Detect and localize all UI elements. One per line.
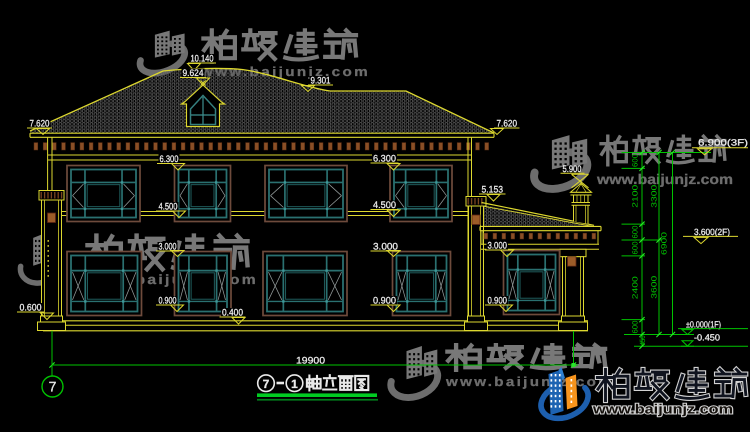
svg-text:-0.450: -0.450 (694, 333, 720, 343)
svg-text:3300: 3300 (650, 185, 659, 208)
svg-text:600: 600 (631, 241, 640, 254)
svg-text:600: 600 (631, 226, 640, 239)
svg-text:6.900(3F): 6.900(3F) (698, 137, 748, 147)
svg-text:1: 1 (291, 377, 298, 391)
svg-text:6900: 6900 (660, 232, 669, 255)
svg-text:±0.000(1F): ±0.000(1F) (686, 319, 721, 329)
svg-text:19900: 19900 (296, 356, 325, 367)
svg-text:www.baijunjz.com: www.baijunjz.com (596, 171, 733, 187)
svg-text:600: 600 (631, 154, 640, 167)
svg-text:7: 7 (49, 379, 57, 395)
svg-text:2400: 2400 (631, 276, 640, 299)
svg-text:2100: 2100 (631, 185, 640, 208)
svg-text:3.600(2F): 3.600(2F) (694, 227, 730, 237)
svg-text:www.baijunjz.com: www.baijunjz.com (445, 374, 614, 389)
svg-text:600: 600 (631, 321, 640, 334)
svg-text:www.baijunjz.com: www.baijunjz.com (592, 402, 733, 417)
svg-text:450: 450 (638, 335, 647, 345)
svg-text:7: 7 (263, 377, 270, 391)
svg-text:3600: 3600 (650, 276, 659, 299)
